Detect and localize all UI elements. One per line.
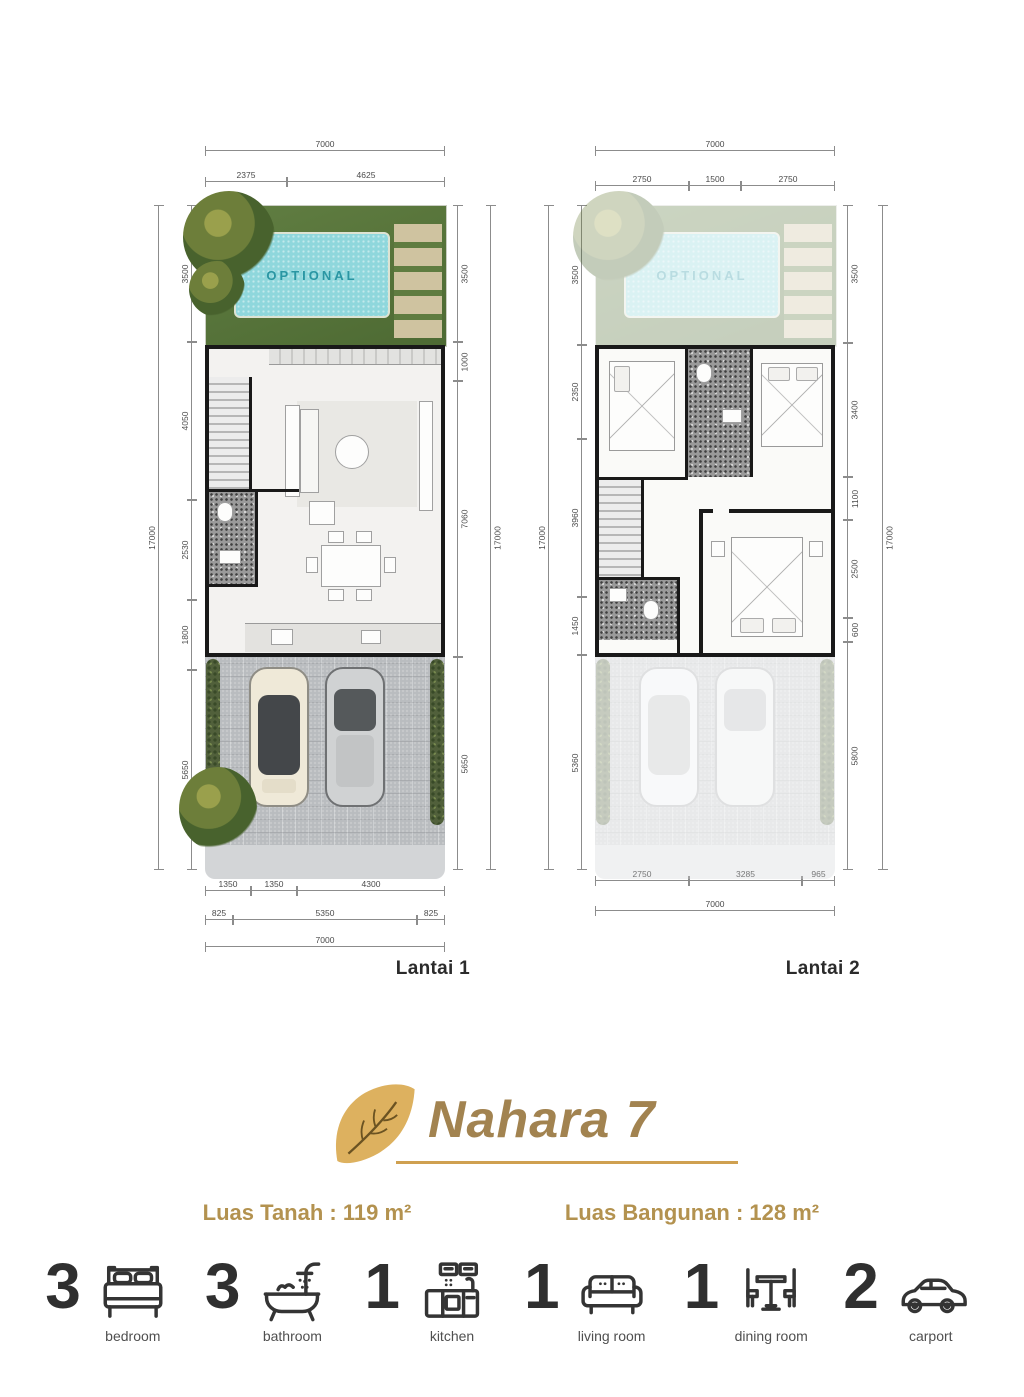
legend-item-kitchen: 1: [364, 1256, 500, 1344]
tree-icon: [179, 767, 257, 851]
floorplan-brochure: 7000 2375 4625 17000 3500 4050 2530 1800…: [0, 0, 1024, 1397]
dim-label: 7000: [706, 140, 725, 149]
kitchen-icon-block: kitchen: [404, 1256, 500, 1344]
carport-count: 2: [843, 1256, 879, 1317]
floorplan-lantai-2: OPTIONAL: [595, 205, 835, 870]
dim-label: 17000: [538, 526, 547, 550]
ottoman: [309, 501, 335, 525]
kitchen-counter: [245, 623, 441, 652]
dim-label: 1800: [181, 626, 190, 645]
bathroom: [209, 492, 258, 587]
driveway: [595, 845, 835, 879]
dim-label: 2750: [779, 175, 798, 184]
dim-label: 2350: [571, 383, 580, 402]
pool-deck-tiles: [394, 224, 442, 338]
dim-l2-left-total: 17000: [548, 205, 549, 870]
dim-l2-right-seg5: 600: [847, 618, 848, 642]
bed-icon: [96, 1256, 170, 1330]
dim-label: 2375: [237, 171, 256, 180]
dim-l2-left-seg5: 5360: [581, 655, 582, 870]
dim-label: 825: [212, 909, 226, 918]
dim-l1-bottom1-seg1: 1350: [205, 890, 251, 891]
bathroom-icon-block: bathroom: [244, 1256, 340, 1344]
lantai-1-label: Lantai 1: [300, 958, 470, 980]
title-underline: [396, 1161, 738, 1164]
car-cream: [249, 667, 309, 807]
kitchen-count: 1: [364, 1256, 400, 1317]
house-outline: [205, 345, 445, 657]
dim-l2-right-seg6: 5800: [847, 642, 848, 870]
dim-label: 7000: [706, 900, 725, 909]
floorplan-lantai-1: OPTIONAL: [205, 205, 445, 870]
dim-label: 3400: [851, 401, 860, 420]
carport-icon-block: carport: [883, 1256, 979, 1344]
house-outline: [595, 345, 835, 657]
car-ghost: [715, 667, 775, 807]
tree-icon: [573, 191, 665, 283]
dim-l2-right-seg1: 3500: [847, 205, 848, 343]
dining-room-count: 1: [684, 1256, 720, 1317]
dim-label: 1350: [265, 880, 284, 889]
bedroom-label: bedroom: [105, 1328, 160, 1344]
dim-l1-left-seg4: 1800: [191, 600, 192, 670]
hedge: [430, 659, 444, 825]
tv-cabinet: [419, 401, 433, 511]
pillow: [772, 618, 796, 633]
dining-chair: [356, 531, 372, 543]
car-roof-glass: [648, 695, 690, 775]
dim-l1-bottom2-seg3: 825: [417, 919, 445, 920]
stove: [271, 629, 293, 645]
sink: [722, 409, 742, 423]
dim-l1-left-total: 17000: [158, 205, 159, 870]
dim-l1-bottom2-seg2: 5350: [233, 919, 417, 920]
dim-label: 5360: [571, 753, 580, 772]
living-room-icon-block: living room: [564, 1256, 660, 1344]
bathtub-icon: [255, 1256, 329, 1330]
dim-l2-left-seg4: 1450: [581, 597, 582, 655]
pool-optional-label: OPTIONAL: [656, 268, 747, 283]
legend-item-dining-room: 1 dining room: [684, 1256, 820, 1344]
dim-label: 1000: [461, 352, 470, 371]
pool-deck-tiles: [784, 224, 832, 338]
dim-label: 5650: [461, 754, 470, 773]
legend-item-bathroom: 3 bathroom: [205, 1256, 341, 1344]
dim-label: 4300: [362, 880, 381, 889]
nightstand: [711, 541, 725, 557]
living-room-count: 1: [524, 1256, 560, 1317]
dim-l1-top-seg2: 4625: [287, 181, 445, 182]
dim-label: 3500: [851, 265, 860, 284]
driveway: [205, 845, 445, 879]
bedroom-count: 3: [45, 1256, 81, 1317]
dim-label: 17000: [148, 526, 157, 550]
dim-label: 3500: [461, 264, 470, 283]
dim-l1-left-seg3: 2530: [191, 500, 192, 600]
toilet: [217, 502, 233, 522]
dim-label: 600: [851, 623, 860, 637]
dim-label: 1450: [571, 617, 580, 636]
dim-l2-right-seg4: 2500: [847, 520, 848, 618]
dim-label: 17000: [494, 526, 503, 550]
wall: [677, 577, 680, 653]
wall: [703, 509, 713, 513]
dim-label: 17000: [886, 526, 895, 550]
staircase: [599, 480, 644, 583]
car-hood: [262, 779, 296, 793]
sink: [219, 550, 241, 564]
dining-chair: [328, 531, 344, 543]
pillow: [614, 366, 630, 392]
hedge: [820, 659, 834, 825]
dining-table: [321, 545, 381, 587]
dim-l1-bottom-total: 7000: [205, 946, 445, 947]
carport-label: carport: [909, 1328, 953, 1344]
dim-l2-left-seg2: 2350: [581, 345, 582, 439]
dim-label: 2750: [633, 175, 652, 184]
dim-label: 2500: [851, 560, 860, 579]
dim-label: 4050: [181, 412, 190, 431]
toilet: [696, 363, 712, 383]
dim-label: 2530: [181, 541, 190, 560]
bathroom-label: bathroom: [263, 1328, 322, 1344]
tree-icon: [189, 261, 245, 317]
bathroom: [688, 349, 750, 477]
lantai-2-label: Lantai 2: [690, 958, 860, 980]
dim-l1-right-seg4: 5650: [457, 657, 458, 870]
dim-l2-left-seg3: 3960: [581, 439, 582, 597]
dim-label: 1350: [219, 880, 238, 889]
wall: [729, 509, 831, 513]
pillow: [768, 367, 790, 381]
bed: [731, 537, 803, 637]
bedroom-icon-block: bedroom: [85, 1256, 181, 1344]
dim-l2-bottom1-seg2: 3285: [689, 880, 802, 881]
dim-label: 3500: [571, 266, 580, 285]
dining-table-icon: [734, 1256, 808, 1330]
kitchen-sink: [361, 630, 381, 644]
car-silver: [325, 667, 385, 807]
dim-l2-bottom1-seg1: 2750: [595, 880, 689, 881]
dim-label: 7000: [316, 140, 335, 149]
pillow: [796, 367, 818, 381]
hedge: [596, 659, 610, 825]
dim-l2-top-seg3: 2750: [741, 185, 835, 186]
nightstand: [809, 541, 823, 557]
dim-l2-bottom1-seg3: 965: [802, 880, 835, 881]
dining-chair: [328, 589, 344, 601]
toilet: [643, 600, 659, 620]
window-sill: [269, 349, 441, 365]
dim-l1-right-total: 17000: [490, 205, 491, 870]
dim-l2-top-total: 7000: [595, 150, 835, 151]
facility-legend: 3 bedroom 3: [10, 1256, 1014, 1344]
car-windshield: [334, 689, 376, 731]
dim-label: 825: [424, 909, 438, 918]
legend-item-living-room: 1 living room: [524, 1256, 660, 1344]
car-roof: [336, 735, 374, 787]
bed: [761, 363, 823, 447]
dim-l1-right-seg2: 1000: [457, 342, 458, 381]
dim-label: 5650: [181, 761, 190, 780]
gold-leaf-logo-icon: [328, 1080, 424, 1172]
dim-label: 1500: [706, 175, 725, 184]
dim-label: 3960: [571, 509, 580, 528]
kitchen-label: kitchen: [430, 1328, 474, 1344]
dining-chair: [356, 589, 372, 601]
dim-l2-right-total: 17000: [882, 205, 883, 870]
staircase: [209, 377, 252, 492]
coffee-table: [335, 435, 369, 469]
project-title: Nahara 7: [428, 1090, 656, 1150]
dim-l1-bottom1-seg2: 1350: [251, 890, 297, 891]
car-windshield: [724, 689, 766, 731]
building-area-text: Luas Bangunan : 128 m²: [532, 1200, 852, 1226]
dim-label: 7060: [461, 510, 470, 529]
wall: [249, 489, 299, 492]
sink: [609, 588, 627, 602]
dim-l1-right-seg1: 3500: [457, 205, 458, 342]
dining-room-label: dining room: [735, 1328, 808, 1344]
dim-l1-left-seg2: 4050: [191, 342, 192, 500]
dim-label: 5350: [316, 909, 335, 918]
dim-label: 3500: [181, 264, 190, 283]
car-icon: [894, 1256, 968, 1330]
kitchen-icon: [415, 1256, 489, 1330]
car-roof-glass: [258, 695, 300, 775]
dim-label: 5800: [851, 747, 860, 766]
land-area-text: Luas Tanah : 119 m²: [147, 1200, 467, 1226]
dim-l2-right-seg2: 3400: [847, 343, 848, 477]
bathroom-count: 3: [205, 1256, 241, 1317]
legend-item-bedroom: 3 bedroom: [45, 1256, 181, 1344]
dim-label: 4625: [357, 171, 376, 180]
dim-l2-bottom-total: 7000: [595, 910, 835, 911]
sofa: [285, 405, 300, 497]
dining-room-icon-block: dining room: [723, 1256, 819, 1344]
dim-l1-bottom2-seg1: 825: [205, 919, 233, 920]
dim-l1-top-seg1: 2375: [205, 181, 287, 182]
car-ghost: [639, 667, 699, 807]
pillow: [740, 618, 764, 633]
wall: [750, 349, 753, 477]
bed: [609, 361, 675, 451]
dim-l2-top-seg2: 1500: [689, 185, 741, 186]
dim-l1-right-seg3: 7060: [457, 381, 458, 657]
sofa-seat: [300, 409, 319, 493]
dining-chair: [384, 557, 396, 573]
dim-label: 1100: [851, 489, 860, 507]
dining-chair: [306, 557, 318, 573]
pool-optional-label: OPTIONAL: [266, 268, 357, 283]
dim-l2-top-seg1: 2750: [595, 185, 689, 186]
bathroom: [599, 580, 677, 640]
carport-area-faded: [595, 657, 835, 845]
sofa-icon: [575, 1256, 649, 1330]
wall: [699, 509, 703, 653]
dim-label: 7000: [316, 936, 335, 945]
dim-l1-top-total: 7000: [205, 150, 445, 151]
living-room-label: living room: [578, 1328, 646, 1344]
dim-l1-bottom1-seg3: 4300: [297, 890, 445, 891]
legend-item-carport: 2 carport: [843, 1256, 979, 1344]
dim-l2-right-seg3: 1100: [847, 477, 848, 520]
